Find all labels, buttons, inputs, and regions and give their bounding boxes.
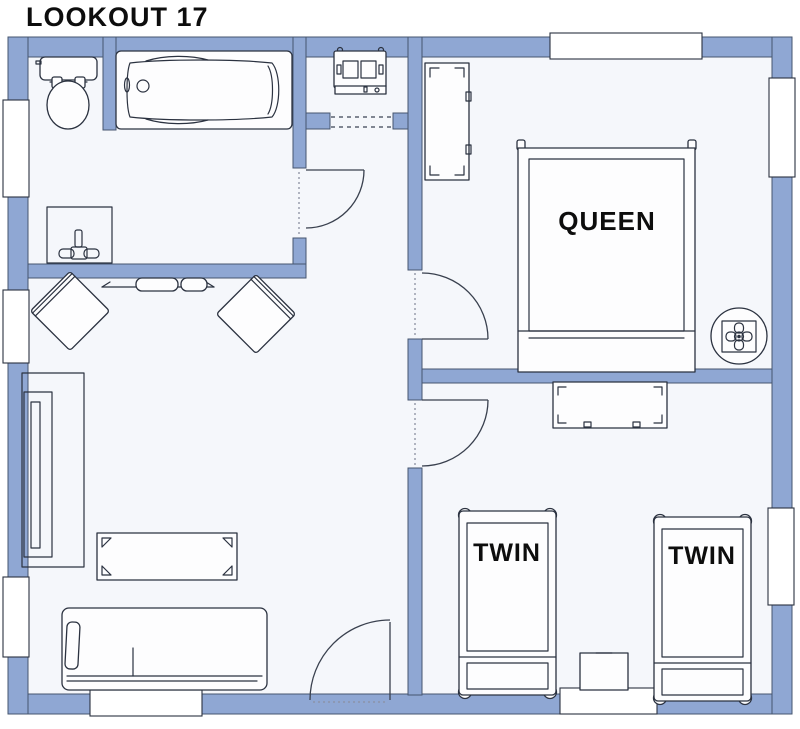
window-left-top	[3, 100, 29, 197]
queen-bed: QUEEN	[517, 140, 696, 372]
nightstand-top	[580, 653, 628, 690]
wall-center-lower	[408, 468, 422, 695]
vanity-counter	[47, 207, 112, 263]
toilet-bowl	[47, 81, 89, 129]
console-cushion-right	[181, 278, 207, 291]
toilet-tank	[40, 57, 97, 80]
twin-dresser-body	[553, 382, 667, 428]
wall-center-upper	[408, 37, 422, 270]
coffee-table-top	[97, 533, 237, 580]
queen-dresser	[425, 63, 471, 180]
sofa-daybed	[62, 608, 267, 690]
wall-bath-east-upper	[293, 37, 306, 168]
console-cushion-left	[136, 278, 178, 291]
window-left-bottom	[3, 577, 29, 657]
window-right-bottom	[768, 508, 794, 605]
queen-bed-label: QUEEN	[558, 206, 655, 236]
page-title: LOOKOUT 17	[26, 2, 209, 32]
nightstand	[580, 653, 628, 690]
sofa-pillow	[65, 622, 80, 670]
vanity-sink	[47, 207, 112, 263]
appliance-body	[334, 51, 386, 88]
window-right-top	[769, 78, 795, 177]
appliance-base	[335, 86, 386, 94]
twin-bed-right-label: TWIN	[668, 542, 736, 570]
wall-closet-stub-right	[393, 113, 408, 129]
bathtub	[116, 51, 292, 129]
stove-flue-dot	[737, 335, 741, 339]
window-left-middle	[3, 290, 29, 363]
twin-bed-left-label: TWIN	[473, 539, 541, 567]
wall-closet-stub-left	[306, 113, 330, 129]
twin-dresser	[553, 382, 667, 428]
sofa-frame	[62, 608, 267, 690]
closet-appliance	[334, 48, 386, 95]
window-bottom-right	[560, 688, 657, 714]
twin-bed-left	[459, 509, 557, 699]
floor-plan-drawing: LOOKOUT 17	[0, 0, 800, 729]
wood-stove	[711, 308, 767, 364]
coffee-table	[97, 533, 237, 580]
window-bottom-left	[90, 690, 202, 716]
window-top	[550, 33, 702, 59]
queen-dresser-body	[425, 63, 469, 180]
wall-center-middle	[408, 339, 422, 400]
floor-plan-page: LOOKOUT 17	[0, 0, 800, 729]
wall-bath-divider	[103, 37, 116, 130]
